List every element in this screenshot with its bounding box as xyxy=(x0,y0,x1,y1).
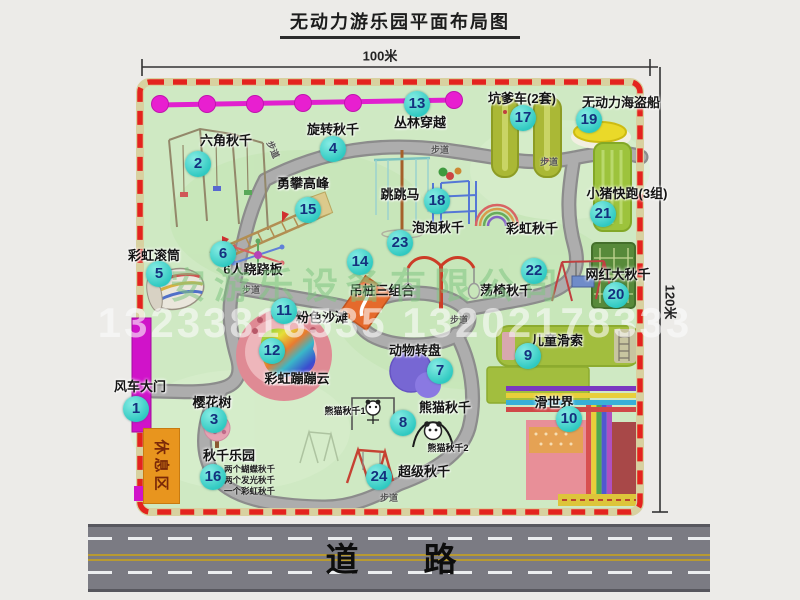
footpath-label: 步道 xyxy=(540,158,558,168)
label-six-person-seesaw: 6人跷跷板 xyxy=(223,263,282,277)
road: 道 路 xyxy=(88,524,710,592)
badge-13: 13 xyxy=(404,91,430,117)
badge-3: 3 xyxy=(201,407,227,433)
badge-19: 19 xyxy=(576,107,602,133)
page-title: 无动力游乐园平面布局图 xyxy=(280,8,520,39)
label-jumping-horse: 跳跳马 xyxy=(380,188,419,202)
badge-22: 22 xyxy=(521,258,547,284)
footpath-label: 步道 xyxy=(242,286,260,296)
label-peak-climbing: 勇攀高峰 xyxy=(277,177,329,191)
label-kids-zipline: 儿童滑索 xyxy=(531,334,583,348)
footpath-label: 步道 xyxy=(431,146,449,156)
label-super-swing: 超级秋千 xyxy=(398,465,450,479)
badge-14: 14 xyxy=(347,249,373,275)
badge-1: 1 xyxy=(123,396,149,422)
label-animal-carousel: 动物转盘 xyxy=(389,344,441,358)
label-piggy-run: 小猪快跑(3组) xyxy=(587,187,668,201)
swing-park-note: 两个发光秋千 xyxy=(224,475,275,486)
label-hexagon-swing: 六角秋千 xyxy=(200,134,252,148)
road-label: 道 路 xyxy=(326,533,473,581)
badge-7: 7 xyxy=(427,358,453,384)
swing-park-note: 两个蝴蝶秋千 xyxy=(224,464,275,475)
label-jungle-crossing: 丛林穿越 xyxy=(394,116,446,130)
label-swing-park: 秋千乐园 xyxy=(203,449,255,463)
label-windmill-gate: 风车大门 xyxy=(114,380,166,394)
label-panda-swing-1: 熊猫秋千1 xyxy=(324,407,365,417)
width-dimension-label: 100米 xyxy=(363,46,398,65)
badge-5: 5 xyxy=(146,261,172,287)
badge-2: 2 xyxy=(185,151,211,177)
badge-20: 20 xyxy=(603,282,629,308)
badge-6: 6 xyxy=(210,241,236,267)
footpath-label: 步道 xyxy=(380,494,398,504)
rest-area: 休息区 xyxy=(143,428,180,504)
label-big-swing: 网红大秋千 xyxy=(585,268,650,282)
height-dimension-label: 120米 xyxy=(662,285,681,320)
swing-park-notes: 两个蝴蝶秋千 两个发光秋千 一个彩虹秋千 xyxy=(224,464,275,497)
badge-11: 11 xyxy=(271,298,297,324)
badge-16: 16 xyxy=(200,464,226,490)
label-swing-chair: 荡椅秋千 xyxy=(480,284,532,298)
badge-17: 17 xyxy=(510,105,536,131)
label-bubble-swing: 泡泡秋千 xyxy=(412,221,464,235)
badge-15: 15 xyxy=(295,197,321,223)
badge-12: 12 xyxy=(259,338,285,364)
badge-8: 8 xyxy=(390,410,416,436)
badge-4: 4 xyxy=(320,136,346,162)
rest-area-label: 休息区 xyxy=(151,439,172,493)
badge-23: 23 xyxy=(387,230,413,256)
label-rotating-swing: 旋转秋千 xyxy=(307,123,359,137)
footpath-label: 步道 xyxy=(450,316,468,326)
badge-24: 24 xyxy=(366,464,392,490)
badge-9: 9 xyxy=(515,343,541,369)
badge-18: 18 xyxy=(424,188,450,214)
label-rainbow-swing: 彩虹秋千 xyxy=(506,222,558,236)
label-rainbow-bounce-cloud: 彩虹蹦蹦云 xyxy=(264,372,329,386)
badge-10: 10 xyxy=(556,406,582,432)
label-hanging-post-combo: 吊桩三组合 xyxy=(349,284,414,298)
label-pit-dad-cart: 坑爹车(2套) xyxy=(488,92,556,106)
park-layout-page: 无动力游乐园平面布局图 xyxy=(0,0,800,600)
swing-park-note: 一个彩虹秋千 xyxy=(224,486,275,497)
label-panda-swing-2: 熊猫秋千2 xyxy=(427,444,468,454)
label-panda-swing: 熊猫秋千 xyxy=(419,401,471,415)
badge-21: 21 xyxy=(590,201,616,227)
label-pink-beach: 粉色沙滩 xyxy=(296,311,348,325)
